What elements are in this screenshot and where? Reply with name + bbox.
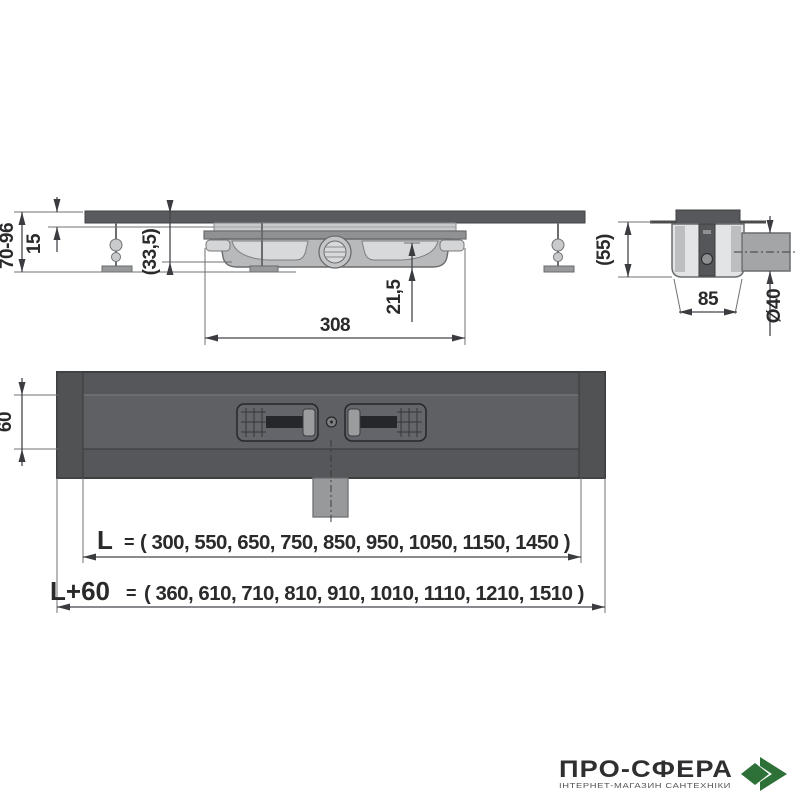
dim-33-5-label: (33,5) [140,229,161,276]
fastener-left [237,404,318,441]
leg-right-knob2 [554,253,563,262]
fastener-left-bar [266,416,306,428]
end-view: (55) 85 Ø40 [594,210,798,336]
dim-L: L = ( 300, 550, 650, 750, 850, 950, 1050… [83,525,581,561]
dim-L60-values: ( 360, 610, 710, 810, 910, 1010, 1110, 1… [144,582,584,605]
dim-L60-symbol: L+60 [50,576,110,606]
fastener-right-bar [357,416,397,428]
dim-L-values: ( 300, 550, 650, 750, 850, 950, 1050, 11… [140,531,570,554]
drain-channel-drawing: 70-96 15 (33,5) 21,5 [0,0,800,800]
dim-85: 85 [674,279,742,316]
end-cap-right [579,372,605,478]
dim-308-label: 308 [320,315,350,336]
dim-L60: L+60 = ( 360, 610, 710, 810, 910, 1010, … [50,576,605,611]
dim-55-label: (55) [594,234,615,266]
side-clamp-right [440,240,464,251]
dim-L-equals: = [124,532,135,552]
side-clamp-left [206,240,230,251]
top-view: 60 [0,372,605,524]
side-view-channel-bar [85,211,585,223]
dim-L60-equals: = [126,583,137,603]
technical-drawing-page: 70-96 15 (33,5) 21,5 [0,0,800,800]
leg-left-knob [110,239,122,251]
end-view-wall-left [675,226,685,272]
dim-o40-label: Ø40 [764,289,785,323]
fastener-right [345,404,426,441]
watermark-wordmark: ПРО-СФЕРА [559,756,733,783]
foot-right [544,266,574,272]
end-view-wall-right [731,226,741,272]
dim-60-label: 60 [0,412,16,432]
center-screw-dot [330,421,333,424]
column-slot [703,230,711,234]
foot-left [102,266,132,272]
watermark-subtitle: ІНТЕРНЕТ-МАГАЗИН САНТЕХНІКИ [559,781,731,790]
watermark-logo: ПРО-СФЕРА ІНТЕРНЕТ-МАГАЗИН САНТЕХНІКИ [559,756,787,791]
leg-left-knob2 [112,253,121,262]
dim-70-96-label: 70-96 [0,223,18,269]
dim-15-label: 15 [24,233,45,254]
leg-right-knob [552,239,564,251]
green-diamond-chevron-icon [741,757,787,791]
side-view: 70-96 15 (33,5) 21,5 [0,197,585,345]
end-cap-left [57,372,83,478]
fastener-left-tab [303,409,315,436]
dim-60: 60 [0,378,58,466]
dim-21-5-label: 21,5 [384,279,405,315]
dim-85-label: 85 [698,289,719,310]
dim-L-symbol: L [97,525,113,555]
fastener-right-tab [348,409,360,436]
end-view-screw [702,254,713,265]
foot-mid-left [250,266,278,272]
end-view-flange [676,210,740,224]
dim-55: (55) [594,222,672,277]
